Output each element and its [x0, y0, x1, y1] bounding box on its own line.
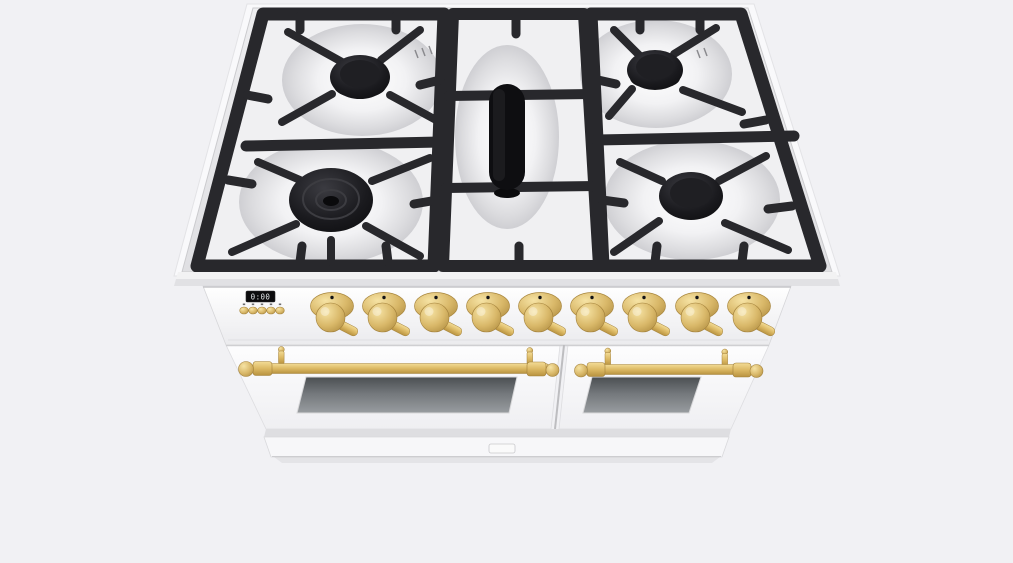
range-render: 0:00 — [0, 0, 1013, 563]
drawer-latch[interactable] — [489, 444, 515, 453]
oven-doors — [226, 345, 769, 429]
handle-finial — [239, 362, 254, 377]
storage-drawer[interactable] — [264, 429, 731, 457]
burner-cap-back-right — [627, 50, 683, 90]
panel-button-4[interactable] — [267, 307, 276, 314]
product-render-stage: 0:00 — [0, 0, 1013, 563]
handle-finial — [750, 365, 763, 378]
drawer-recess — [264, 429, 731, 437]
door-window-right — [583, 377, 701, 413]
burner-cap-front-left-ring-burner — [289, 168, 373, 232]
control-panel: 0:00 — [203, 286, 791, 345]
panel-button-2[interactable] — [249, 307, 258, 314]
panel-button-1[interactable] — [240, 307, 249, 314]
oval-griddle-burner — [489, 84, 525, 198]
cooktop-front-lip — [176, 272, 838, 279]
burner-cap-front-right — [659, 172, 723, 220]
handle-post — [278, 347, 284, 365]
display-value: 0:00 — [251, 293, 271, 302]
handle-post — [722, 349, 728, 367]
cooktop-front-lip-shadow — [174, 279, 840, 286]
panel-button-3[interactable] — [258, 307, 267, 314]
handle-post — [605, 348, 611, 366]
burner-cap-back-left — [330, 55, 390, 99]
door-window-left — [297, 377, 517, 413]
oven-display: 0:00 — [246, 291, 275, 302]
handle-finial — [575, 364, 588, 377]
cooktop — [174, 4, 840, 286]
floor-shadow — [274, 457, 720, 463]
panel-button-5[interactable] — [276, 307, 285, 314]
handle-finial — [546, 364, 559, 377]
